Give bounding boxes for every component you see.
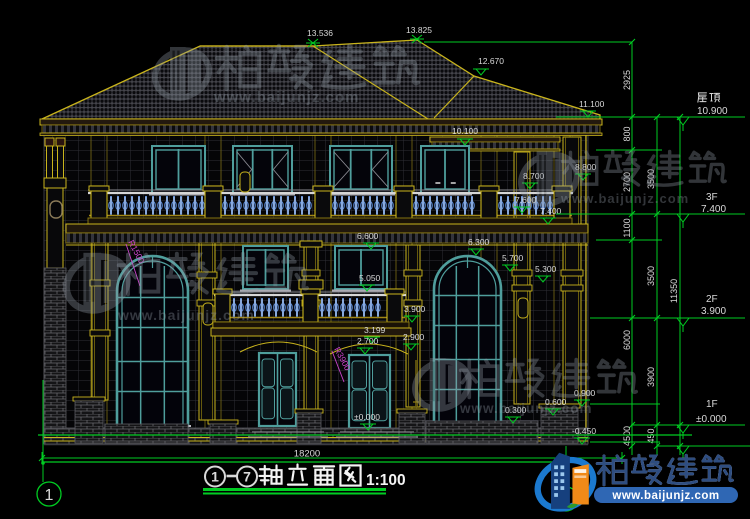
- svg-text:www.baijunjz.com: www.baijunjz.com: [611, 490, 719, 502]
- svg-text:3.900: 3.900: [404, 304, 426, 314]
- svg-text:6.600: 6.600: [357, 231, 379, 241]
- svg-text:1F: 1F: [706, 399, 718, 410]
- svg-text:3F: 3F: [706, 192, 718, 203]
- svg-text:3.199: 3.199: [364, 325, 386, 335]
- svg-text:1: 1: [45, 487, 54, 504]
- svg-text:3500: 3500: [646, 266, 656, 286]
- svg-text:3900: 3900: [646, 367, 656, 387]
- svg-text:11350: 11350: [669, 279, 679, 303]
- svg-text:800: 800: [622, 126, 632, 141]
- svg-text:2925: 2925: [622, 70, 632, 90]
- svg-text:2F: 2F: [706, 294, 718, 305]
- svg-text:5.050: 5.050: [359, 273, 381, 283]
- svg-text:2.700: 2.700: [357, 336, 379, 346]
- svg-text:2.900: 2.900: [403, 332, 425, 342]
- svg-text:www.baijunjz.com: www.baijunjz.com: [560, 191, 689, 206]
- svg-text:www.baijunjz.com: www.baijunjz.com: [117, 307, 255, 323]
- svg-text:7.400: 7.400: [701, 204, 726, 215]
- svg-text:1:100: 1:100: [366, 472, 406, 489]
- svg-text:±0.000: ±0.000: [354, 412, 380, 422]
- svg-text:10.900: 10.900: [697, 106, 728, 117]
- svg-text:1100: 1100: [622, 218, 632, 237]
- svg-text:12.670: 12.670: [478, 56, 504, 66]
- svg-text:450: 450: [646, 428, 656, 443]
- svg-text:5.300: 5.300: [535, 264, 557, 274]
- svg-text:10.100: 10.100: [452, 126, 478, 136]
- svg-text:18200: 18200: [294, 449, 320, 460]
- svg-text:11.100: 11.100: [579, 99, 605, 109]
- svg-text:www.baijunjz.com: www.baijunjz.com: [459, 401, 593, 416]
- svg-text:www.baijunjz.com: www.baijunjz.com: [213, 89, 359, 106]
- svg-text:6.300: 6.300: [468, 237, 490, 247]
- svg-text:13.536: 13.536: [307, 28, 333, 38]
- svg-text:6000: 6000: [622, 330, 632, 350]
- svg-text:±0.000: ±0.000: [696, 414, 727, 425]
- svg-text:1: 1: [211, 469, 219, 485]
- svg-text:4500: 4500: [622, 426, 632, 446]
- svg-text:3.900: 3.900: [701, 306, 726, 317]
- svg-text:5.700: 5.700: [502, 253, 524, 263]
- svg-text:7: 7: [243, 469, 251, 485]
- svg-text:13.825: 13.825: [406, 25, 432, 35]
